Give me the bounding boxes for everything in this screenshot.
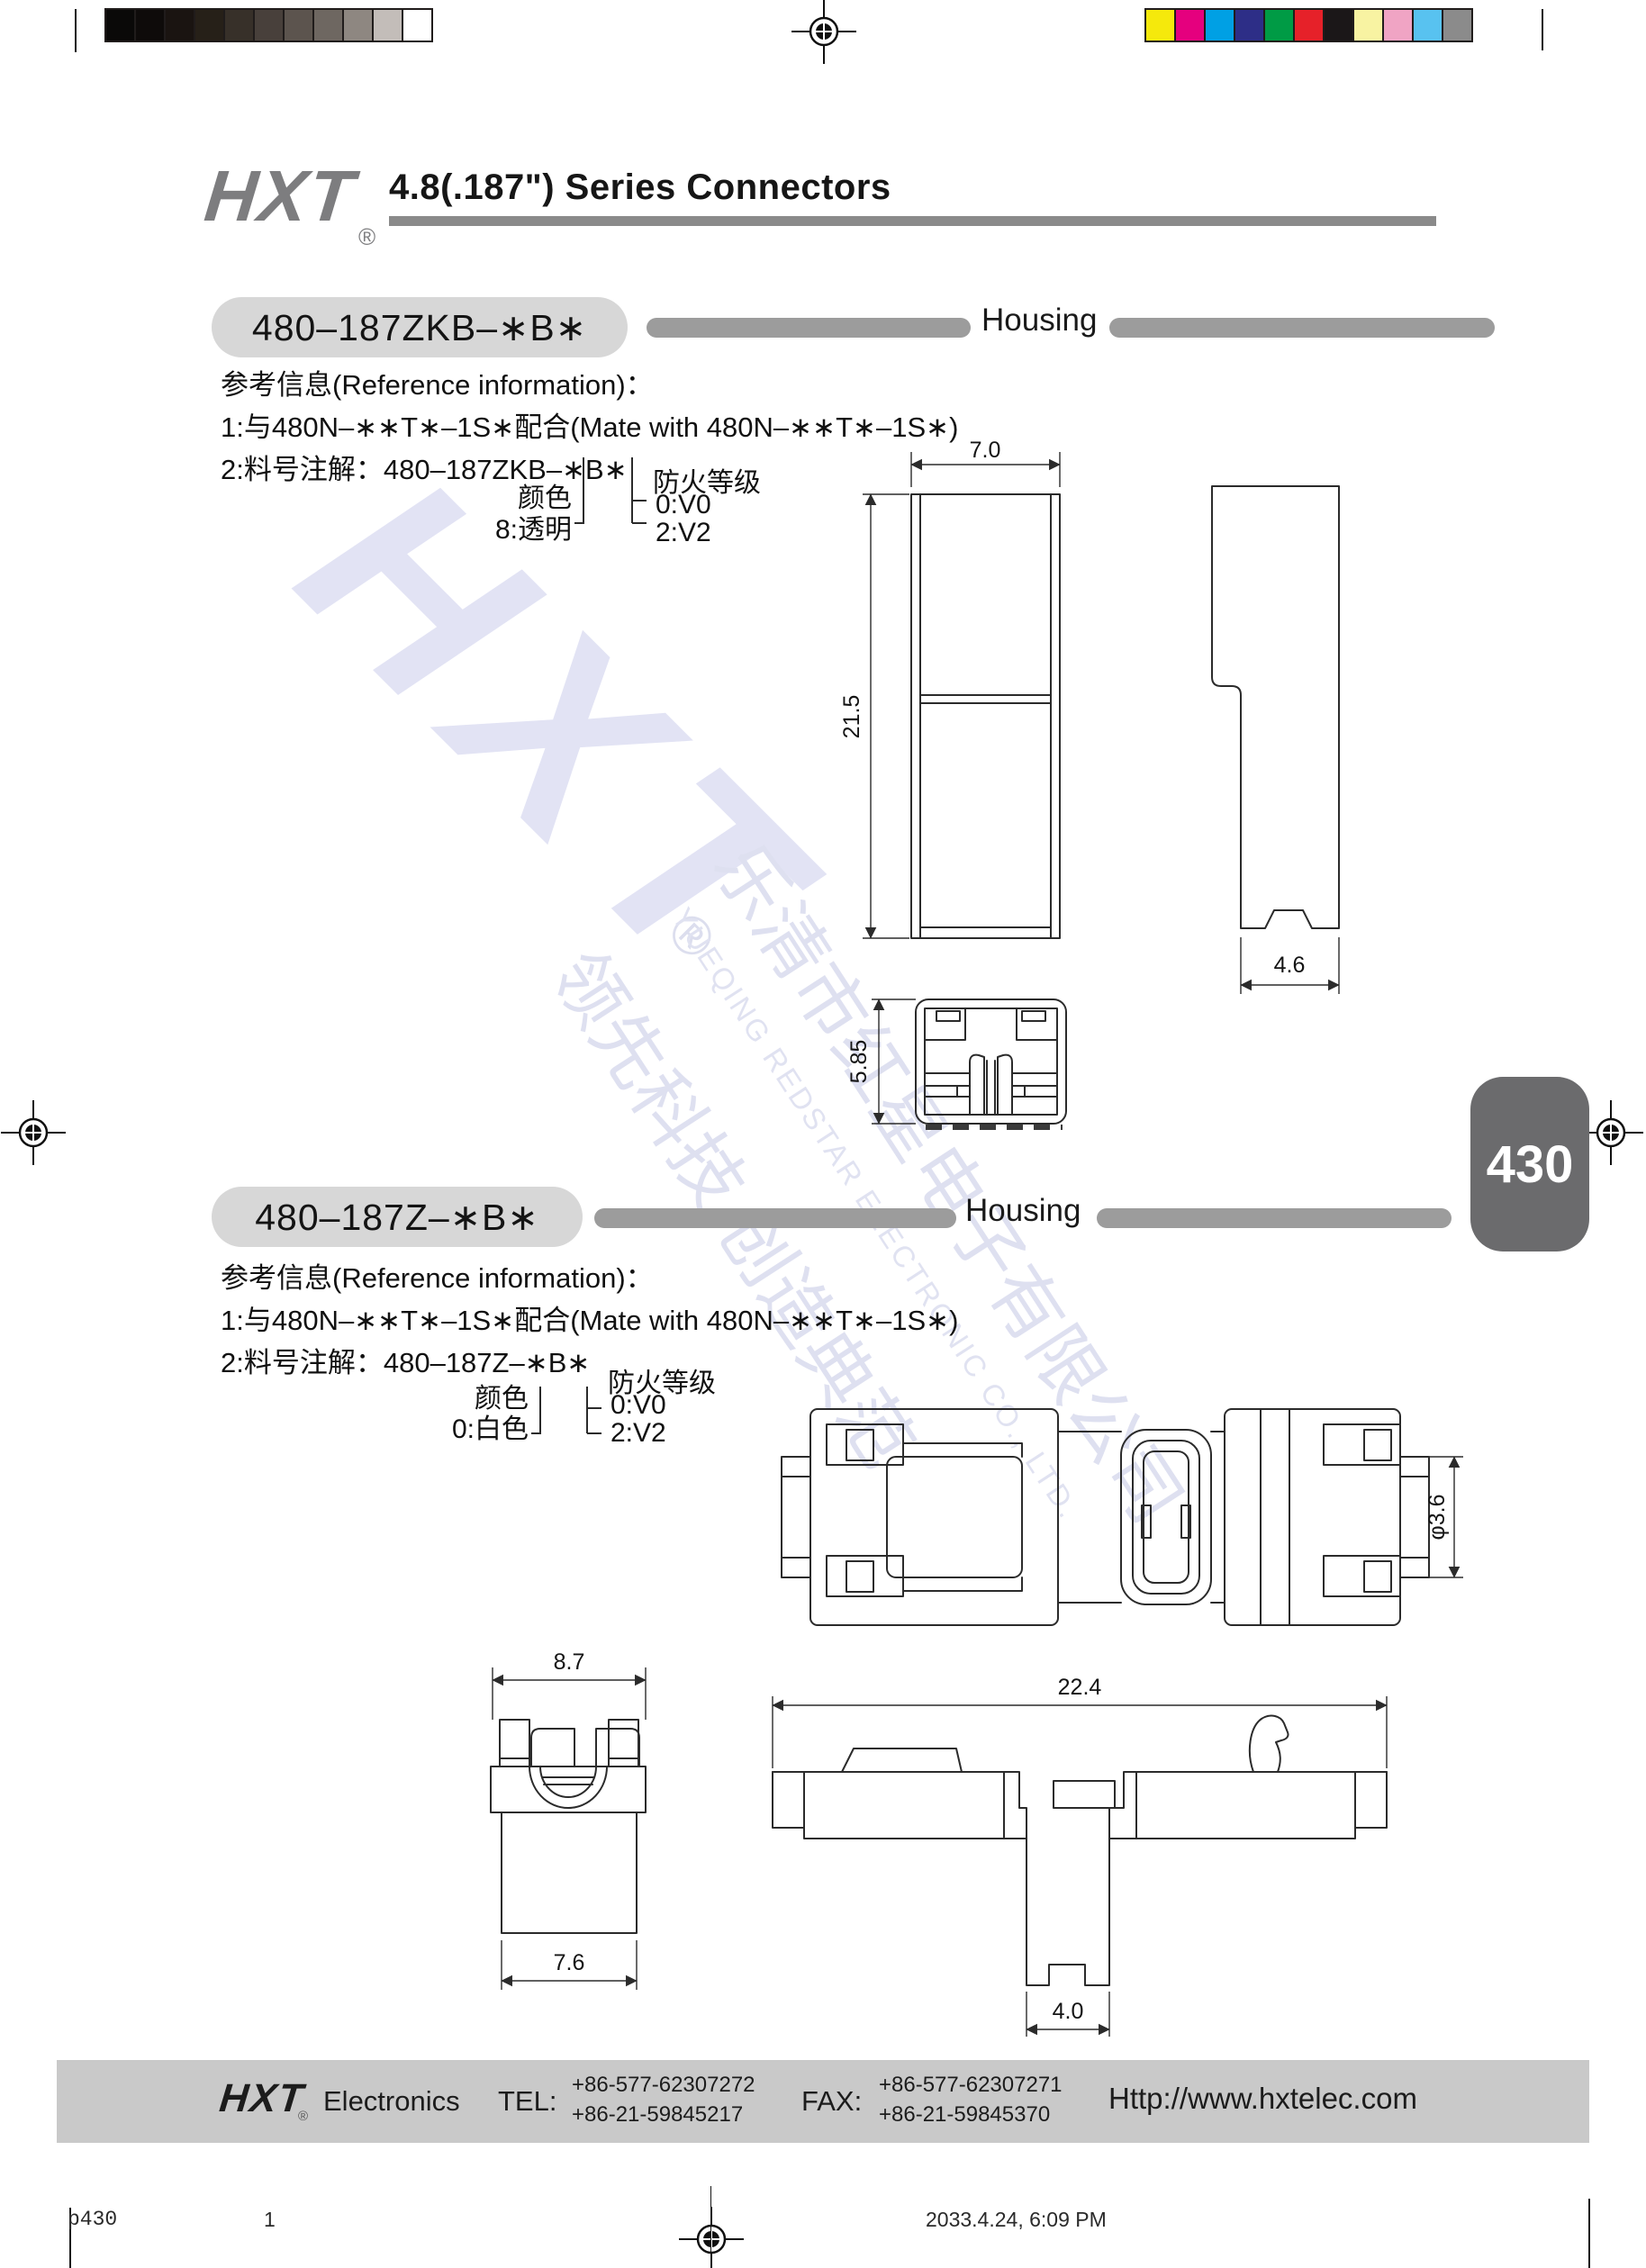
footer-bar: HXT ® Electronics TEL: +86-577-62307272 …	[57, 2060, 1589, 2143]
grayscale-swatch	[283, 8, 314, 42]
housing-bar-1b	[1109, 318, 1495, 338]
section2-front-view-drawing: 8.7 7.6	[468, 1630, 702, 2008]
crop-mark-top-left	[75, 9, 77, 52]
footer-fax-numbers: +86-577-62307271 +86-21-59845370	[879, 2070, 1063, 2129]
color-swatch	[1293, 8, 1325, 42]
housing-bar-2b	[1097, 1208, 1452, 1228]
color-swatch	[1352, 8, 1384, 42]
dim-front-top-2: 8.7	[554, 1649, 585, 1675]
housing-bar-1a	[647, 318, 971, 338]
grayscale-swatch	[312, 8, 344, 42]
grayscale-swatch	[164, 8, 195, 42]
color-swatch	[1382, 8, 1414, 42]
dim-width-1: 7.0	[970, 441, 1001, 463]
footer-fax-label: FAX:	[801, 2085, 862, 2118]
grayscale-swatch	[223, 8, 255, 42]
footer-company: Electronics	[323, 2085, 460, 2118]
legend2-fire-v0: 0:V0	[610, 1390, 666, 1421]
housing-bar-2a	[594, 1208, 956, 1228]
footer-tel-1: +86-577-62307272	[572, 2070, 755, 2100]
grayscale-swatch	[134, 8, 166, 42]
registered-trademark-icon: ®	[358, 223, 375, 251]
page-title: 4.8(.187") Series Connectors	[389, 167, 891, 208]
catalog-page: HXT ® 乐清市红星电子有限公司 YUEQING REDSTAR ELECTR…	[0, 0, 1646, 2268]
color-swatch	[1442, 8, 1473, 42]
dim-front-bottom-2: 7.6	[554, 1950, 585, 1975]
crop-line-bottom-center	[710, 2186, 711, 2268]
grayscale-swatch	[253, 8, 285, 42]
legend1-fire-v0: 0:V0	[656, 490, 711, 520]
grayscale-swatch	[402, 8, 433, 42]
section2-top-view-drawing: φ3.6	[774, 1396, 1477, 1639]
category-label-1: Housing	[981, 303, 1097, 339]
grayscale-swatch	[372, 8, 403, 42]
part-number-badge-2: 480–187Z–∗B∗	[212, 1187, 583, 1247]
grayscale-calibration-bar	[106, 8, 433, 42]
dim-stem-width-2: 4.0	[1053, 1999, 1084, 2024]
title-underline	[389, 216, 1436, 226]
crop-mark-bottom-right	[1588, 2199, 1590, 2268]
color-swatch	[1234, 8, 1265, 42]
registration-mark-top	[790, 0, 858, 66]
dim-side-length-2: 22.4	[1058, 1675, 1102, 1700]
dim-side-width-1: 4.6	[1274, 953, 1306, 978]
brand-logo: HXT	[201, 155, 359, 238]
dim-diameter-2: φ3.6	[1424, 1495, 1450, 1541]
print-page-number: 1	[264, 2208, 276, 2232]
color-swatch	[1204, 8, 1235, 42]
dim-height-1: 21.5	[839, 695, 864, 739]
reference-line2-2: 2:料号注解：480–187Z–∗B∗	[221, 1342, 958, 1384]
footer-logo: HXT	[217, 2076, 306, 2121]
crop-mark-top-right	[1542, 9, 1543, 50]
registration-mark-bottom	[677, 2205, 746, 2268]
footer-website: Http://www.hxtelec.com	[1108, 2082, 1417, 2116]
dim-bottom-height-1: 5.85	[846, 1040, 872, 1084]
color-swatch	[1412, 8, 1443, 42]
footer-tel-numbers: +86-577-62307272 +86-21-59845217	[572, 2070, 755, 2129]
color-calibration-bar	[1146, 8, 1473, 42]
section1-drawings: 7.0 21.5 4.6 5.85	[837, 441, 1369, 1143]
footer-tel-2: +86-21-59845217	[572, 2100, 755, 2129]
legend2-color-value: 0:白色	[421, 1406, 529, 1446]
color-swatch	[1323, 8, 1354, 42]
grayscale-swatch	[104, 8, 136, 42]
legend1-fire-v2: 2:V2	[656, 518, 711, 548]
section2-side-view-drawing: 22.4 4.0	[756, 1675, 1405, 2044]
grayscale-swatch	[194, 8, 225, 42]
color-swatch	[1144, 8, 1176, 42]
page-number-tab: 430	[1470, 1077, 1589, 1251]
legend1-color-value: 8:透明	[466, 507, 572, 547]
color-swatch	[1174, 8, 1206, 42]
footer-tel-label: TEL:	[498, 2085, 556, 2118]
reference-title-2: 参考信息(Reference information)：	[221, 1257, 958, 1299]
footer-registered-icon: ®	[298, 2109, 308, 2124]
print-file-label: p430	[68, 2208, 117, 2231]
category-label-2: Housing	[965, 1193, 1081, 1229]
reference-block-2: 参考信息(Reference information)： 1:与480N–∗∗T…	[221, 1257, 958, 1384]
color-swatch	[1263, 8, 1295, 42]
footer-fax-1: +86-577-62307271	[879, 2070, 1063, 2100]
print-datetime: 2033.4.24, 6:09 PM	[926, 2208, 1107, 2232]
reference-line1-2: 1:与480N–∗∗T∗–1S∗配合(Mate with 480N–∗∗T∗–1…	[221, 1299, 958, 1342]
registration-mark-left	[0, 1098, 68, 1167]
part-number-badge-1: 480–187ZKB–∗B∗	[212, 297, 628, 357]
footer-fax-2: +86-21-59845370	[879, 2100, 1063, 2129]
grayscale-swatch	[342, 8, 374, 42]
legend2-fire-v2: 2:V2	[610, 1418, 666, 1449]
reference-title-1: 参考信息(Reference information)：	[221, 364, 958, 406]
